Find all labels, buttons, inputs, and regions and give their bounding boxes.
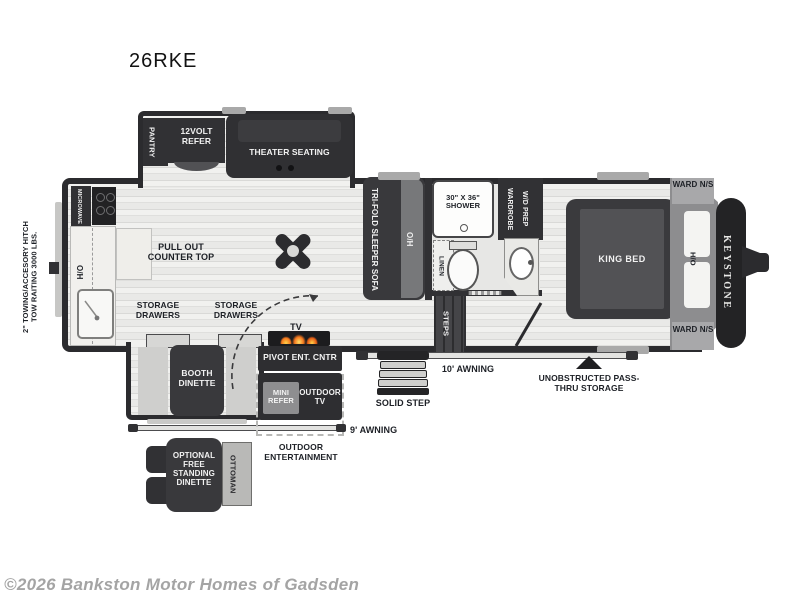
theater-cupholder bbox=[288, 165, 294, 171]
outdoor-tv-label: OUTDOOR TV bbox=[298, 389, 342, 407]
rear-hitch-stub bbox=[49, 262, 59, 274]
window-tab bbox=[597, 172, 649, 180]
theater-seat-back bbox=[238, 120, 341, 142]
sofa-overhead-label: O/H bbox=[404, 222, 420, 256]
kitchen-sink bbox=[77, 289, 114, 339]
ward-ns-bottom-label: WARD N/S bbox=[672, 326, 714, 335]
storage-drawers-label-2: STORAGE DRAWERS bbox=[205, 301, 267, 320]
optional-dinette-label: OPTIONAL FREE STANDING DINETTE bbox=[169, 452, 219, 488]
slide-skirt bbox=[147, 419, 247, 424]
bath-threshold bbox=[468, 291, 502, 295]
fireplace bbox=[268, 331, 330, 346]
awning-arm bbox=[356, 351, 368, 360]
burner bbox=[106, 206, 115, 215]
theater-cupholder bbox=[276, 165, 282, 171]
wardrobe-label: WARDROBE W/D PREP bbox=[502, 183, 535, 235]
outdoor-entertainment-label: OUTDOOR ENTERTAINMENT bbox=[256, 443, 346, 462]
brand-label: KEYSTONE bbox=[721, 206, 741, 340]
mini-refer-label: MINI REFER bbox=[263, 389, 299, 406]
pass-thru-marker bbox=[576, 356, 602, 369]
floorplan-canvas: 26RKE 2" TOWING/ACCESORY HITCH TOW RAITI… bbox=[0, 0, 800, 600]
refer-label: 12VOLT REFER bbox=[168, 127, 225, 146]
awning-arm bbox=[336, 424, 346, 432]
dinette-bench bbox=[226, 347, 256, 415]
tv-label: TV bbox=[283, 322, 309, 332]
copyright-text: ©2026 Bankston Motor Homes of Gadsden bbox=[4, 575, 359, 595]
step-tread bbox=[378, 379, 428, 387]
dinette-bench bbox=[138, 347, 168, 415]
slide-latch-tab bbox=[328, 107, 352, 114]
hitch-note: 2" TOWING/ACCESORY HITCH TOW RAITING 300… bbox=[22, 213, 46, 341]
step-tread bbox=[377, 388, 429, 395]
awning-arm bbox=[128, 424, 138, 432]
fireplace-flames bbox=[274, 334, 324, 344]
booth-dinette-label: BOOTH DINETTE bbox=[170, 369, 224, 388]
toilet bbox=[447, 249, 479, 291]
shower-label: 30" X 36" SHOWER bbox=[434, 194, 492, 211]
dinette-chair bbox=[146, 446, 168, 473]
step-tread bbox=[377, 351, 429, 360]
burner bbox=[96, 206, 105, 215]
step-tread bbox=[379, 370, 427, 378]
drawer-front bbox=[218, 334, 262, 348]
microwave-label: MICROWAVE bbox=[76, 189, 87, 223]
awning-main-label: 10' AWNING bbox=[438, 364, 498, 374]
window-tab bbox=[378, 172, 420, 180]
pass-thru-label: UNOBSTRUCTED PASS-THRU STORAGE bbox=[538, 374, 640, 393]
dinette-chair bbox=[146, 477, 168, 504]
solid-step bbox=[377, 351, 429, 395]
pullout-counter-label: PULL OUT COUNTER TOP bbox=[141, 242, 221, 262]
bath-wall-left bbox=[425, 178, 432, 300]
king-bed-label: KING BED bbox=[580, 254, 664, 264]
awning-rear-label: 9' AWNING bbox=[350, 425, 400, 435]
rear-window bbox=[55, 202, 62, 317]
steps-label: STEPS bbox=[441, 301, 457, 347]
ho-cabinet-label: H/O bbox=[688, 243, 702, 275]
pantry-label: PANTRY bbox=[147, 121, 164, 164]
linen-label: LINEN bbox=[437, 246, 450, 286]
storage-drawers-label-1: STORAGE DRAWERS bbox=[127, 301, 189, 320]
burner bbox=[106, 193, 115, 202]
tri-fold-sofa-label: TRI-FOLD SLEEPER SOFA bbox=[366, 186, 400, 292]
theater-label: THEATER SEATING bbox=[228, 148, 351, 158]
page-title: 26RKE bbox=[129, 50, 197, 73]
solid-step-label: SOLID STEP bbox=[374, 398, 432, 408]
awning-arm bbox=[626, 351, 638, 360]
kingpin-tip bbox=[757, 253, 769, 272]
vanity-faucet bbox=[528, 260, 533, 265]
shower-drain bbox=[460, 224, 468, 232]
hitch-note-line2: TOW RAITING 3000 LBS. bbox=[30, 213, 38, 341]
step-tread bbox=[380, 361, 426, 369]
slide-latch-tab bbox=[222, 107, 246, 114]
ceiling-fan bbox=[263, 221, 323, 281]
ottoman-label: OTTOMAN bbox=[228, 447, 246, 502]
pivot-ent-label: PIVOT ENT. CNTR bbox=[258, 353, 342, 363]
fan-hub bbox=[285, 243, 301, 259]
kitchen-overhead-label: O/H bbox=[74, 256, 89, 288]
burner bbox=[96, 193, 105, 202]
ward-ns-top-label: WARD N/S bbox=[672, 181, 714, 190]
